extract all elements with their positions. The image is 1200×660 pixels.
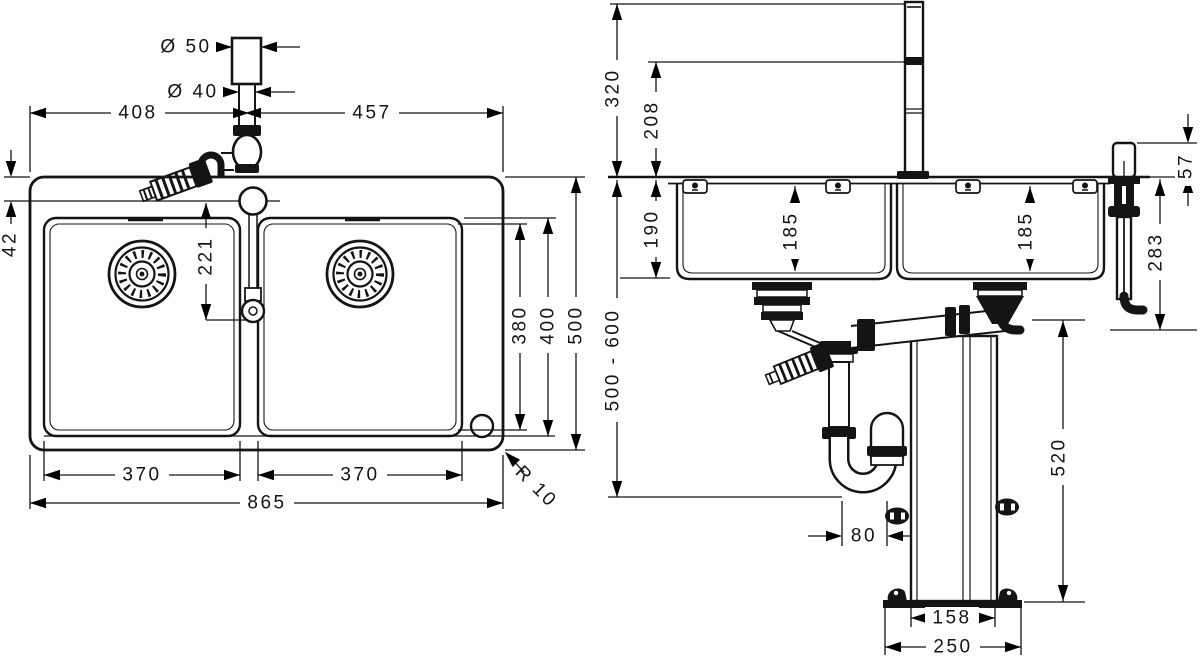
dia40-label: Ø 40 (167, 82, 218, 103)
faucet-plan (232, 38, 267, 322)
hose-plan (137, 153, 234, 207)
front-view: 320 208 190 185 185 57 (602, 2, 1197, 658)
dim-320-label: 320 (603, 68, 624, 107)
dim-457-label: 457 (352, 103, 391, 124)
dim-185-right-label: 185 (1016, 211, 1037, 250)
dim-158-label: 158 (932, 608, 971, 629)
right-drain-strainer (327, 241, 393, 307)
dim-190: 190 (620, 180, 670, 278)
dim-370-right-label: 370 (340, 465, 379, 486)
technical-drawing-canvas: Ø 50 Ø 40 408 457 42 (0, 0, 1200, 660)
dia50-callout: Ø 50 (160, 37, 300, 58)
dim-370-865: 370 370 865 (30, 441, 503, 514)
dim-185-right: 185 (1015, 186, 1037, 271)
dim-57: 57 (1137, 114, 1197, 206)
faucet-front (897, 2, 929, 179)
dim-42: 42 (0, 150, 38, 264)
dim-520: 520 (1024, 320, 1085, 602)
dim-520-label: 520 (1049, 437, 1070, 476)
dim-80-label: 80 (851, 526, 877, 547)
dim-500-label: 500 (566, 305, 587, 344)
dim-370-left-label: 370 (122, 465, 161, 486)
dim-408-label: 408 (118, 103, 157, 124)
dim-185-left: 185 (780, 186, 802, 271)
dim-185-left-label: 185 (781, 211, 802, 250)
left-drain-strainer (109, 241, 175, 307)
dispenser-hole (471, 415, 493, 437)
dishwasher-hose (762, 342, 834, 392)
clip (826, 180, 850, 193)
corner-radius-callout: R 10 (501, 448, 561, 512)
right-foot (998, 589, 1017, 601)
dispenser-front (1108, 143, 1143, 310)
sink-technical-drawing: Ø 50 Ø 40 408 457 42 (0, 0, 1200, 660)
dim-500-600-label: 500 - 600 (603, 309, 624, 412)
mounting-column (883, 336, 1022, 608)
left-clamp (885, 508, 909, 525)
drain-trap-assembly (752, 282, 907, 483)
dim-380-label: 380 (510, 305, 531, 344)
dim-283-label: 283 (1146, 232, 1167, 271)
dia50-label: Ø 50 (160, 37, 211, 58)
dim-250-label: 250 (933, 637, 972, 658)
right-bowl-front (897, 183, 1104, 279)
dim-r10-label: R 10 (511, 462, 561, 512)
dim-380-400-500: 380 400 500 (458, 177, 587, 450)
dim-865-label: 865 (247, 493, 286, 514)
clip (683, 180, 707, 193)
dim-320: 320 (602, 4, 905, 177)
dim-42-label: 42 (0, 231, 21, 257)
dim-408-457: 408 457 (30, 102, 503, 172)
faucet-base (897, 171, 929, 179)
clip (1073, 180, 1097, 193)
tailpipe (829, 362, 849, 427)
dim-208-label: 208 (642, 100, 663, 139)
dim-190-label: 190 (642, 209, 663, 248)
hose-clip (201, 155, 221, 177)
left-foot (888, 589, 907, 601)
dim-500-600: 500 - 600 (602, 180, 842, 497)
tap-hole (240, 188, 267, 215)
dim-57-label: 57 (1176, 153, 1197, 179)
right-clamp (995, 499, 1019, 516)
dim-158: 158 (911, 607, 995, 629)
clip (956, 180, 980, 193)
spout-top (232, 38, 261, 84)
dim-221: 221 (195, 203, 246, 320)
dim-221-label: 221 (196, 236, 217, 275)
plan-view: Ø 50 Ø 40 408 457 42 (0, 37, 587, 515)
dim-208: 208 (641, 62, 905, 177)
dim-400-label: 400 (538, 305, 559, 344)
